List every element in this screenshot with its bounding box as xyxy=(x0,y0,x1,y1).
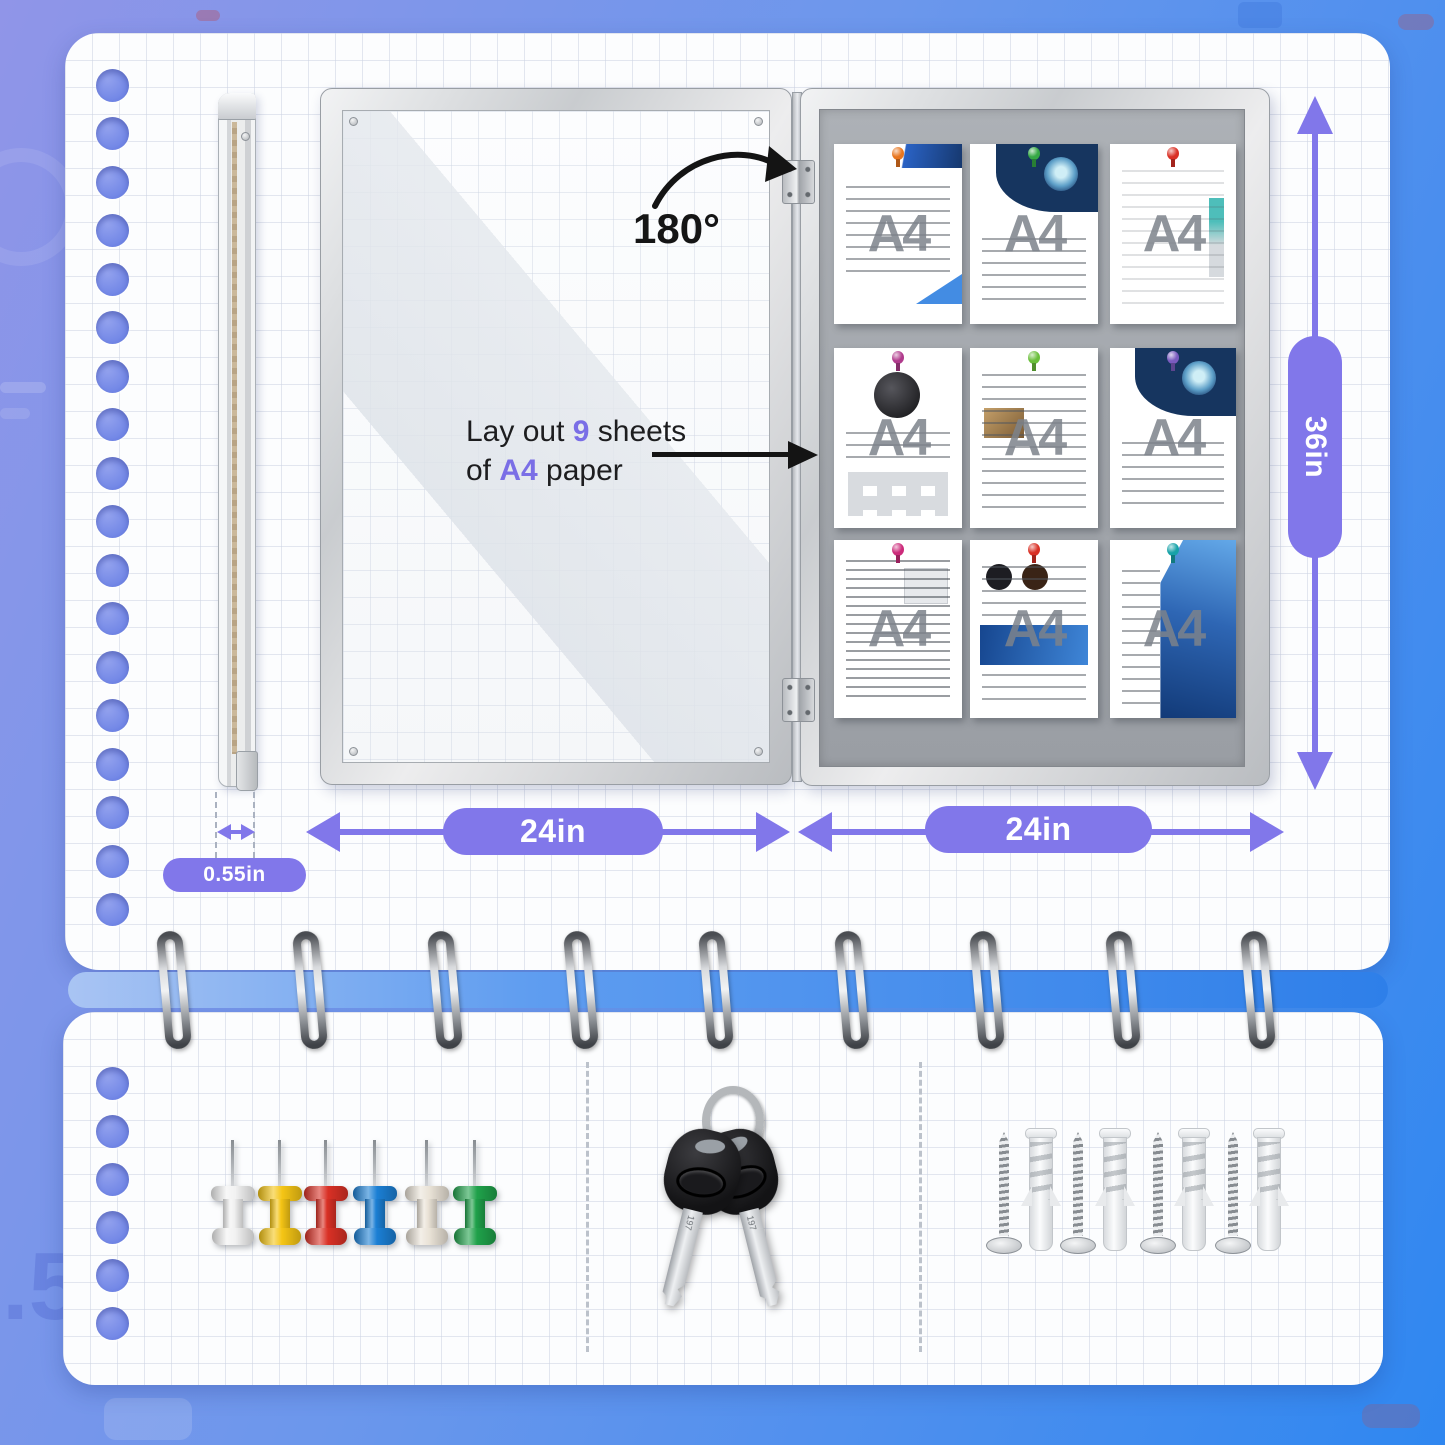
pinned-a4-sheet: A4 xyxy=(834,144,962,324)
pinned-a4-sheet: A4 xyxy=(1110,144,1236,324)
pushpin-icon xyxy=(1166,351,1180,372)
wall-anchor-icon xyxy=(1025,1128,1057,1256)
pushpin-icon xyxy=(891,543,905,564)
background-bar-doodle xyxy=(0,382,46,393)
pin-needle xyxy=(278,1140,281,1190)
binder-hole xyxy=(96,263,129,296)
pin-base xyxy=(212,1228,254,1245)
arrow-left-icon xyxy=(798,812,832,852)
binder-hole xyxy=(96,796,129,829)
key-blade: 197 xyxy=(660,1208,703,1308)
binder-hole xyxy=(96,214,129,247)
screw-icon xyxy=(349,747,358,756)
binder-hole xyxy=(96,166,129,199)
keys: 197 197 xyxy=(650,1086,810,1326)
pushpin-icon xyxy=(1027,147,1041,168)
pushpin-icon xyxy=(891,351,905,372)
a4-watermark-label: A4 xyxy=(834,540,962,718)
anchor-wing xyxy=(1095,1186,1106,1206)
product-infographic: .5 0.55in A4A4A4A4A4A4A4A4A4 36in 24in 2… xyxy=(0,0,1445,1445)
pin-base xyxy=(305,1228,347,1245)
background-red-doodle xyxy=(196,10,220,21)
binder-hole xyxy=(96,699,129,732)
a4-watermark-label: A4 xyxy=(1110,144,1236,324)
pin-neck xyxy=(465,1199,485,1230)
pinned-a4-sheet: A4 xyxy=(970,540,1098,718)
pin-needle xyxy=(231,1140,234,1190)
binder-hole xyxy=(96,1259,129,1292)
arrow-right-icon xyxy=(788,441,818,469)
binder-hole xyxy=(96,69,129,102)
push-pin xyxy=(257,1140,303,1252)
anchor-wing xyxy=(1278,1186,1289,1206)
arrow-left-icon xyxy=(217,824,231,840)
binder-hole xyxy=(96,845,129,878)
pin-neck xyxy=(223,1199,243,1230)
arrow-up-icon xyxy=(1297,96,1333,134)
pin-neck xyxy=(316,1199,336,1230)
pin-needle xyxy=(473,1140,476,1190)
a4-watermark-label: A4 xyxy=(1110,540,1236,718)
binder-hole xyxy=(96,1307,129,1340)
pinned-a4-sheet: A4 xyxy=(1110,540,1236,718)
binder-hole xyxy=(96,505,129,538)
screw-head xyxy=(986,1237,1022,1254)
pin-base xyxy=(354,1228,396,1245)
binder-hole xyxy=(96,748,129,781)
wall-anchor-icon xyxy=(1099,1128,1131,1256)
push-pin xyxy=(404,1140,450,1252)
pushpin-icon xyxy=(891,147,905,168)
binder-hole xyxy=(96,408,129,441)
hinge-icon xyxy=(782,678,815,722)
background-bar-doodle xyxy=(0,408,30,419)
a4-watermark-label: A4 xyxy=(970,144,1098,324)
door-width-dimension-label: 24in xyxy=(443,808,663,855)
pinned-a4-sheet: A4 xyxy=(970,144,1098,324)
note-arrow xyxy=(652,452,788,457)
background-square-doodle xyxy=(1238,2,1282,28)
anchor-wing xyxy=(1249,1186,1260,1206)
binder-hole xyxy=(96,1163,129,1196)
pin-board: A4A4A4A4A4A4A4A4A4 xyxy=(800,88,1270,786)
pin-needle xyxy=(324,1140,327,1190)
anchor-wing xyxy=(1021,1186,1032,1206)
pushpin-icon xyxy=(1166,147,1180,168)
screw-icon xyxy=(241,132,250,141)
layout-note-line1: Lay out 9 sheets xyxy=(466,412,686,451)
screw-shaft xyxy=(1073,1132,1083,1236)
pin-neck xyxy=(365,1199,385,1230)
pinned-a4-sheet: A4 xyxy=(1110,348,1236,528)
anchor-wing xyxy=(1050,1186,1061,1206)
pushpin-icon xyxy=(1027,351,1041,372)
arrow-right-icon xyxy=(1250,812,1284,852)
pin-neck xyxy=(417,1199,437,1230)
anchor-wing xyxy=(1124,1186,1135,1206)
a4-watermark-label: A4 xyxy=(1110,348,1236,528)
arrow-right-icon xyxy=(756,812,790,852)
binder-hole xyxy=(96,457,129,490)
section-divider xyxy=(919,1062,922,1352)
background-red-doodle xyxy=(1362,1404,1420,1428)
key-blade: 197 xyxy=(739,1208,782,1308)
pin-base xyxy=(406,1228,448,1245)
screw-shaft xyxy=(1153,1132,1163,1236)
push-pin xyxy=(303,1140,349,1252)
screw-head xyxy=(1215,1237,1251,1254)
felt-surface: A4A4A4A4A4A4A4A4A4 xyxy=(819,109,1245,767)
a4-watermark-label: A4 xyxy=(834,348,962,528)
pin-neck xyxy=(270,1199,290,1230)
side-view-cork-strip xyxy=(232,122,237,754)
anchor-wing xyxy=(1174,1186,1185,1206)
wall-anchor-icon xyxy=(1253,1128,1285,1256)
push-pin xyxy=(452,1140,498,1252)
a4-watermark-label: A4 xyxy=(970,540,1098,718)
layout-note: Lay out 9 sheets of A4 paper xyxy=(466,412,686,490)
push-pin xyxy=(352,1140,398,1252)
anchor-wing xyxy=(1203,1186,1214,1206)
pinned-a4-sheet: A4 xyxy=(834,348,962,528)
board-width-dimension-label: 24in xyxy=(925,806,1152,853)
pin-base xyxy=(454,1228,496,1245)
mounting-screw-icon xyxy=(1214,1132,1252,1258)
pin-needle xyxy=(373,1140,376,1190)
arrow-left-icon xyxy=(306,812,340,852)
screw-icon xyxy=(754,747,763,756)
screw-head xyxy=(1060,1237,1096,1254)
binder-hole xyxy=(96,893,129,926)
background-pill-doodle xyxy=(104,1398,192,1440)
pinned-a4-sheet: A4 xyxy=(834,540,962,718)
screw-shaft xyxy=(1228,1132,1238,1236)
binder-hole xyxy=(96,1115,129,1148)
screw-icon xyxy=(754,117,763,126)
a4-watermark-label: A4 xyxy=(970,348,1098,528)
curved-arrow-icon xyxy=(645,138,800,213)
background-red-doodle xyxy=(1398,14,1434,30)
pushpin-icon xyxy=(1027,543,1041,564)
a4-watermark-label: A4 xyxy=(834,144,962,324)
screw-shaft xyxy=(999,1132,1009,1236)
pin-needle xyxy=(425,1140,428,1190)
wall-anchor-icon xyxy=(1178,1128,1210,1256)
height-dimension-label: 36in xyxy=(1288,336,1342,558)
arrow-down-icon xyxy=(1297,752,1333,790)
binder-hole xyxy=(96,602,129,635)
binder-hole xyxy=(96,651,129,684)
mounting-screw-icon xyxy=(1059,1132,1097,1258)
screw-head xyxy=(1140,1237,1176,1254)
pin-base xyxy=(259,1228,301,1245)
screw-icon xyxy=(349,117,358,126)
thickness-dimension-label: 0.55in xyxy=(163,858,306,892)
board-side-view xyxy=(218,93,256,787)
pinned-a4-sheet: A4 xyxy=(970,348,1098,528)
push-pin xyxy=(210,1140,256,1252)
binder-hole xyxy=(96,117,129,150)
mounting-screw-icon xyxy=(1139,1132,1177,1258)
arrow-right-icon xyxy=(241,824,255,840)
binder-hole xyxy=(96,1211,129,1244)
pushpin-icon xyxy=(1166,543,1180,564)
binder-hole xyxy=(96,554,129,587)
section-divider xyxy=(586,1062,589,1352)
binder-hole xyxy=(96,311,129,344)
binder-hole xyxy=(96,1067,129,1100)
binder-hole xyxy=(96,360,129,393)
mounting-screw-icon xyxy=(985,1132,1023,1258)
